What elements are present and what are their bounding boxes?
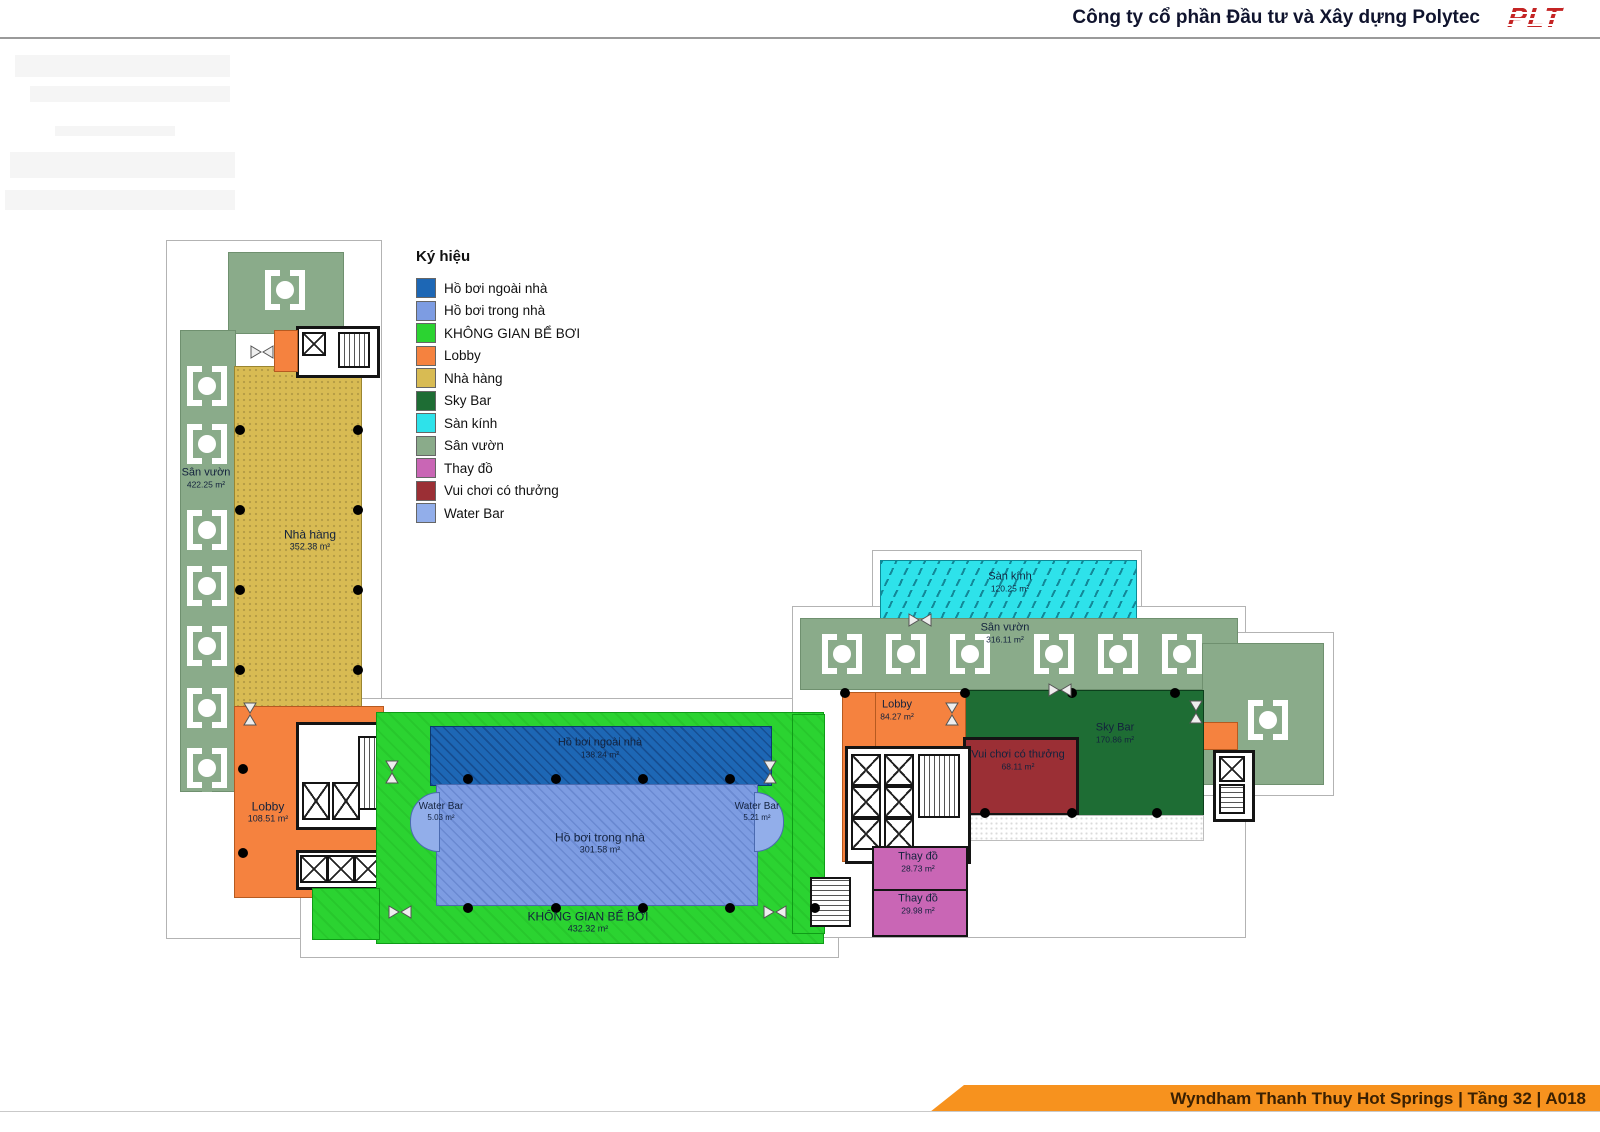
planter-icon xyxy=(822,634,862,674)
print-artifact xyxy=(30,86,230,102)
sheet-title: Wyndham Thanh Thuy Hot Springs | Tầng 32… xyxy=(1170,1089,1600,1109)
print-artifact xyxy=(5,190,235,210)
column-marker xyxy=(353,665,363,675)
legend-item: Sàn kính xyxy=(416,412,580,435)
label-garden-right: Sân vườn316.11 m² xyxy=(981,621,1030,644)
print-artifact xyxy=(15,55,230,77)
elevator-icon xyxy=(884,786,914,818)
label-water-bar-left: Water Bar5.03 m² xyxy=(419,801,464,823)
planter-icon xyxy=(187,626,227,666)
legend-swatch-icon xyxy=(416,481,436,501)
stairs-icon xyxy=(810,877,851,927)
door-swing-icon xyxy=(1189,700,1203,724)
planter-icon xyxy=(187,366,227,406)
column-marker xyxy=(235,585,245,595)
zone-lobby-patch xyxy=(1202,722,1238,750)
label-changing-room-2: Thay đồ29.98 m² xyxy=(898,892,938,915)
door-swing-icon xyxy=(250,345,274,359)
planter-icon xyxy=(1034,634,1074,674)
legend-item: Vui chơi có thưởng xyxy=(416,480,580,503)
label-changing-room-1: Thay đồ28.73 m² xyxy=(898,850,938,873)
column-marker xyxy=(463,903,473,913)
print-artifact xyxy=(10,152,235,178)
walkway xyxy=(963,815,1204,841)
door-swing-icon xyxy=(763,760,777,784)
planter-icon xyxy=(187,510,227,550)
drawing-sheet: Công ty cổ phần Đầu tư và Xây dựng Polyt… xyxy=(0,0,1600,1132)
legend-item: Lobby xyxy=(416,345,580,368)
column-marker xyxy=(551,774,561,784)
elevator-icon xyxy=(851,754,881,786)
legend-swatch-icon xyxy=(416,503,436,523)
planter-icon xyxy=(187,566,227,606)
stairs-icon xyxy=(918,754,960,818)
label-water-bar-right: Water Bar5.21 m² xyxy=(735,801,780,823)
column-marker xyxy=(960,688,970,698)
elevator-icon xyxy=(302,332,326,356)
column-marker xyxy=(353,585,363,595)
column-marker xyxy=(980,808,990,818)
legend-swatch-icon xyxy=(416,323,436,343)
column-marker xyxy=(235,505,245,515)
legend-item: Thay đồ xyxy=(416,457,580,480)
stairs-icon xyxy=(338,332,370,368)
legend-swatch-icon xyxy=(416,413,436,433)
title-bar: Công ty cổ phần Đầu tư và Xây dựng Polyt… xyxy=(0,0,1600,39)
label-restaurant: Nhà hàng352.38 m² xyxy=(284,527,336,552)
planter-icon xyxy=(265,270,305,310)
legend-swatch-icon xyxy=(416,368,436,388)
legend-swatch-icon xyxy=(416,301,436,321)
door-swing-icon xyxy=(1048,683,1072,697)
column-marker xyxy=(1067,808,1077,818)
zone-lobby-patch xyxy=(274,330,298,372)
elevator-icon xyxy=(851,786,881,818)
column-marker xyxy=(238,764,248,774)
column-marker xyxy=(238,848,248,858)
zone-pool-space-ext xyxy=(312,888,380,940)
legend-item: Water Bar xyxy=(416,502,580,525)
column-marker xyxy=(840,688,850,698)
column-marker xyxy=(235,425,245,435)
elevator-icon xyxy=(1219,756,1245,782)
planter-icon xyxy=(187,424,227,464)
label-pool-outdoor: Hồ bơi ngoài nhà138.24 m² xyxy=(558,736,642,759)
planter-icon xyxy=(1248,700,1288,740)
column-marker xyxy=(725,774,735,784)
legend: Ký hiệu Hồ bơi ngoài nhà Hồ bơi trong nh… xyxy=(416,248,580,525)
label-game-room: Vui chơi có thưởng68.11 m² xyxy=(971,748,1065,771)
label-garden-left: Sân vườn422.25 m² xyxy=(182,466,231,489)
legend-item: Hồ bơi trong nhà xyxy=(416,300,580,323)
planter-icon xyxy=(187,748,227,788)
elevator-icon xyxy=(300,855,328,883)
company-name: Công ty cổ phần Đầu tư và Xây dựng Polyt… xyxy=(1072,7,1480,29)
legend-swatch-icon xyxy=(416,278,436,298)
column-marker xyxy=(353,425,363,435)
plt-logo-icon: PLT xyxy=(1507,2,1564,34)
planter-icon xyxy=(1098,634,1138,674)
sheet-title-banner: Wyndham Thanh Thuy Hot Springs | Tầng 32… xyxy=(930,1085,1600,1112)
column-marker xyxy=(1170,688,1180,698)
legend-item: Nhà hàng xyxy=(416,367,580,390)
planter-icon xyxy=(187,688,227,728)
elevator-icon xyxy=(302,782,330,820)
legend-swatch-icon xyxy=(416,436,436,456)
elevator-icon xyxy=(884,754,914,786)
planter-icon xyxy=(886,634,926,674)
legend-swatch-icon xyxy=(416,458,436,478)
door-swing-icon xyxy=(945,702,959,726)
door-swing-icon xyxy=(385,760,399,784)
legend-item: Sky Bar xyxy=(416,390,580,413)
legend-item: Sân vườn xyxy=(416,435,580,458)
legend-title: Ký hiệu xyxy=(416,248,580,265)
column-marker xyxy=(725,903,735,913)
column-marker xyxy=(810,903,820,913)
label-pool-space: KHÔNG GIAN BỂ BƠI432.32 m² xyxy=(528,909,649,934)
legend-item: Hồ bơi ngoài nhà xyxy=(416,277,580,300)
door-swing-icon xyxy=(388,905,412,919)
planter-icon xyxy=(1162,634,1202,674)
stairs-icon xyxy=(1219,784,1245,814)
door-swing-icon xyxy=(908,613,932,627)
label-lobby-left: Lobby108.51 m² xyxy=(248,799,289,824)
column-marker xyxy=(353,505,363,515)
door-swing-icon xyxy=(243,702,257,726)
elevator-icon xyxy=(327,855,355,883)
column-marker xyxy=(1152,808,1162,818)
label-sky-bar: Sky Bar170.86 m² xyxy=(1096,721,1135,744)
legend-swatch-icon xyxy=(416,391,436,411)
column-marker xyxy=(638,774,648,784)
label-pool-indoor: Hồ bơi trong nhà301.58 m² xyxy=(555,830,645,855)
legend-swatch-icon xyxy=(416,346,436,366)
label-lobby-right: Lobby84.27 m² xyxy=(880,698,914,721)
door-swing-icon xyxy=(763,905,787,919)
column-marker xyxy=(463,774,473,784)
label-glass-floor: Sàn kính120.25 m² xyxy=(988,570,1031,593)
legend-item: KHÔNG GIAN BỂ BƠI xyxy=(416,322,580,345)
column-marker xyxy=(235,665,245,675)
elevator-icon xyxy=(332,782,360,820)
print-artifact xyxy=(55,126,175,136)
sheet-bottom-rule xyxy=(0,1111,1600,1112)
